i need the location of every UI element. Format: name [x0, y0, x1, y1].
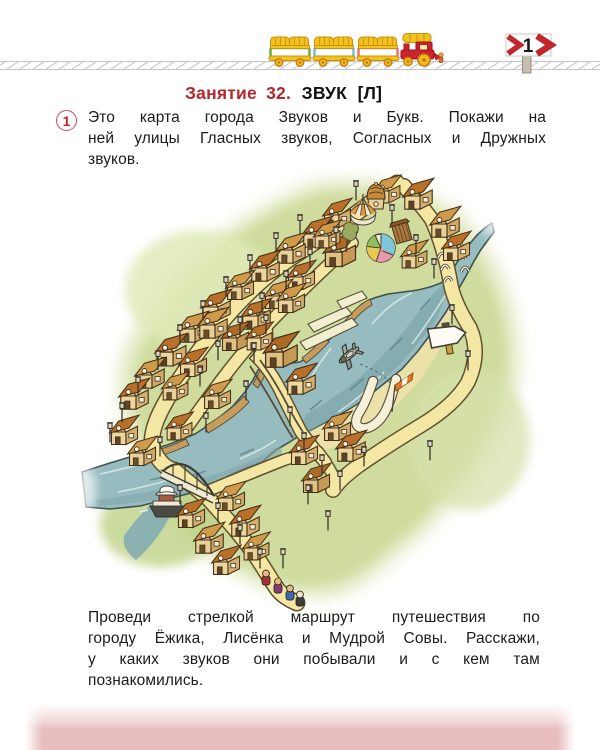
- svg-text:1: 1: [523, 36, 534, 57]
